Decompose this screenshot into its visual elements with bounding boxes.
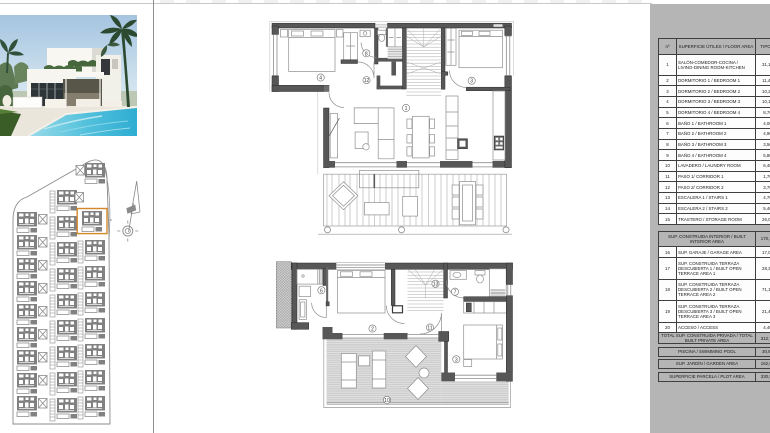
svg-text:7: 7 [454,290,457,296]
svg-text:8: 8 [365,51,368,57]
svg-text:6: 6 [320,288,323,294]
svg-text:1: 1 [405,106,408,112]
svg-text:3: 3 [470,79,473,85]
svg-text:10: 10 [384,398,390,404]
svg-text:4: 4 [319,76,322,82]
svg-text:3: 3 [455,357,458,363]
svg-text:2: 2 [371,327,374,333]
svg-text:11: 11 [427,326,432,332]
svg-text:12: 12 [364,78,370,84]
svg-text:13: 13 [433,282,439,288]
